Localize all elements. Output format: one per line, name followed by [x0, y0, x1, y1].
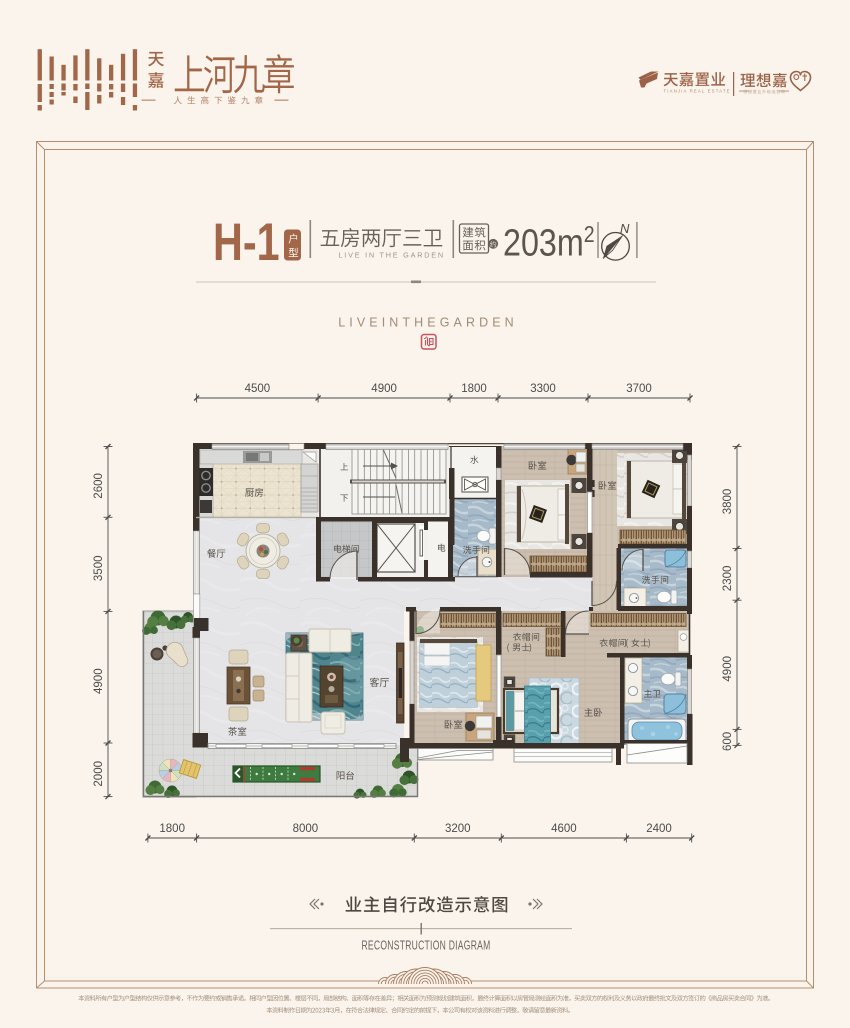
svg-text:3500: 3500 — [93, 556, 105, 582]
svg-text:4900: 4900 — [722, 656, 734, 682]
svg-text:203m2: 203m2 — [503, 222, 595, 265]
svg-text:2000: 2000 — [93, 761, 105, 787]
svg-text:3300: 3300 — [530, 383, 556, 395]
svg-text:N: N — [620, 221, 630, 236]
svg-text:2600: 2600 — [93, 473, 105, 499]
svg-text:H-1: H-1 — [213, 213, 280, 272]
svg-text:3700: 3700 — [626, 383, 652, 395]
svg-text:TIANJIA REAL ESTATE: TIANJIA REAL ESTATE — [664, 89, 731, 94]
svg-text:1800: 1800 — [461, 383, 487, 395]
svg-text:3800: 3800 — [722, 489, 734, 515]
svg-text:600: 600 — [722, 732, 734, 751]
svg-text:4900: 4900 — [93, 668, 105, 694]
svg-text:4600: 4600 — [551, 823, 577, 835]
svg-text:LIVEINTHEGARDEN: LIVEINTHEGARDEN — [338, 316, 518, 330]
svg-text:2300: 2300 — [722, 566, 734, 592]
svg-text:8000: 8000 — [293, 823, 319, 835]
svg-text:4900: 4900 — [371, 383, 397, 395]
svg-text:2400: 2400 — [646, 823, 672, 835]
svg-text:RECONSTRUCTION DIAGRAM: RECONSTRUCTION DIAGRAM — [361, 939, 490, 953]
svg-text:3200: 3200 — [445, 823, 471, 835]
svg-text:LIVE IN THE GARDEN: LIVE IN THE GARDEN — [339, 251, 445, 260]
svg-text:1800: 1800 — [159, 823, 185, 835]
svg-text:4500: 4500 — [245, 383, 271, 395]
